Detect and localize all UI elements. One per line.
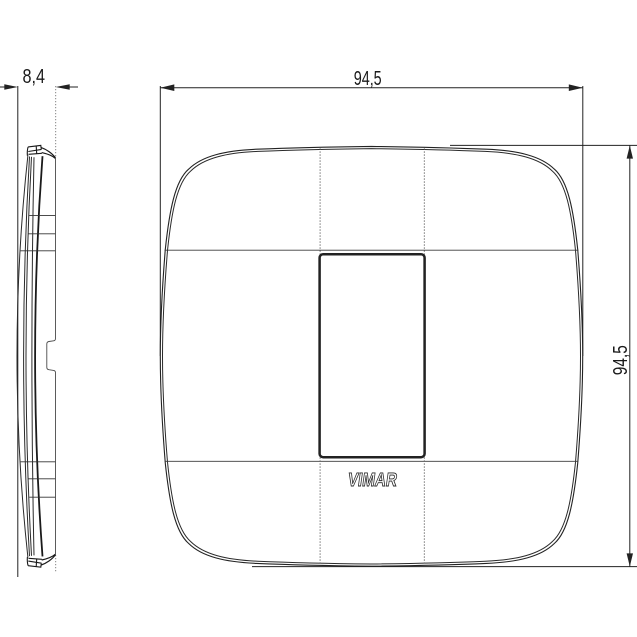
svg-text:8,4: 8,4 [23, 66, 46, 88]
svg-text:94,5: 94,5 [354, 68, 382, 90]
svg-text:94,5: 94,5 [610, 345, 632, 375]
svg-text:VIMAR: VIMAR [347, 470, 399, 491]
